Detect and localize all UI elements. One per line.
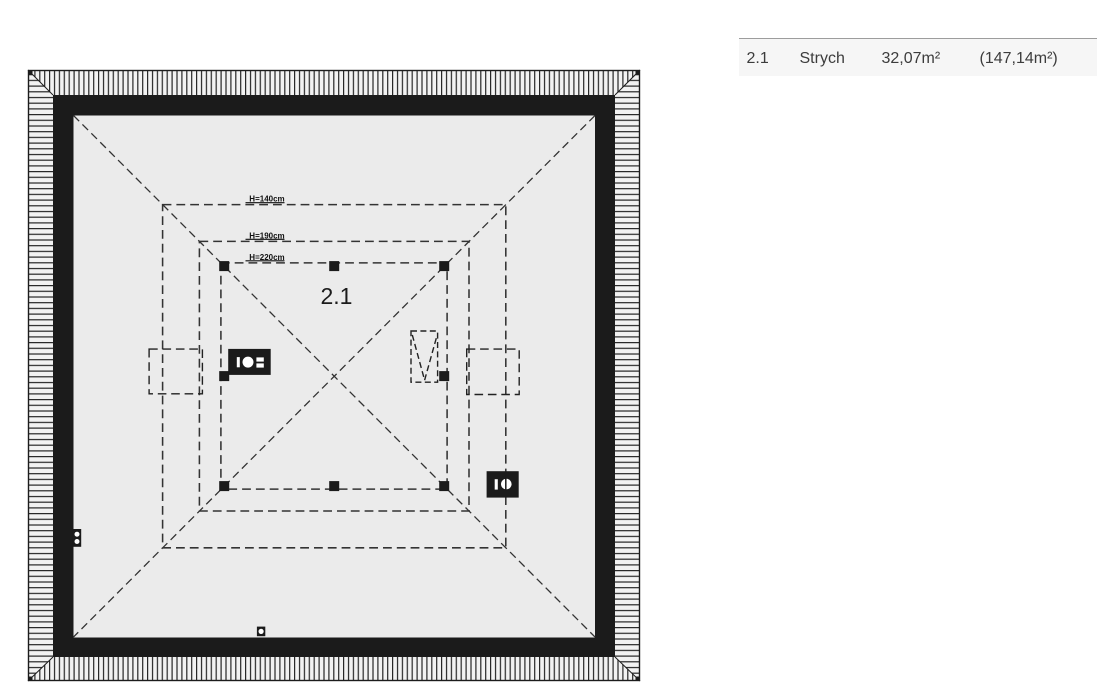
svg-text:2.1: 2.1 xyxy=(321,283,353,309)
